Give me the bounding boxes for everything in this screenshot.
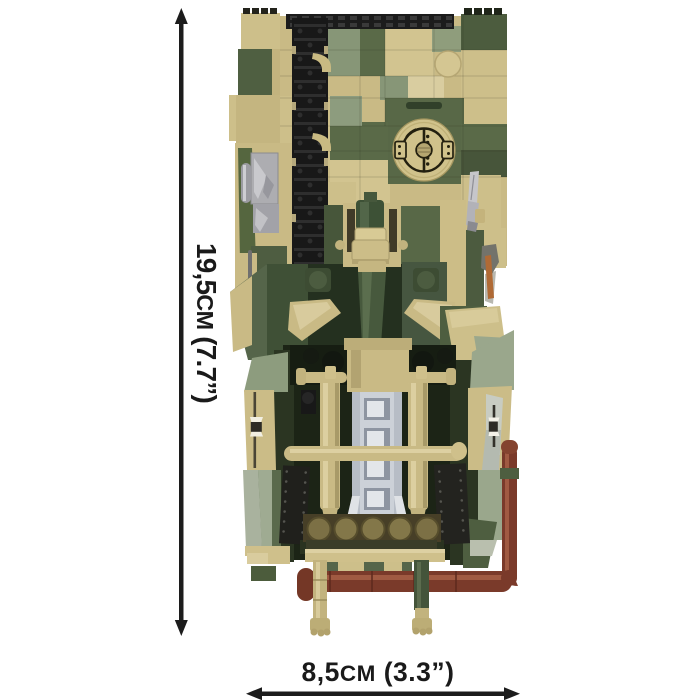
svg-text:19,5CM (7.7”): 19,5CM (7.7”) <box>191 243 222 403</box>
svg-text:8,5CM (3.3”): 8,5CM (3.3”) <box>302 657 455 687</box>
